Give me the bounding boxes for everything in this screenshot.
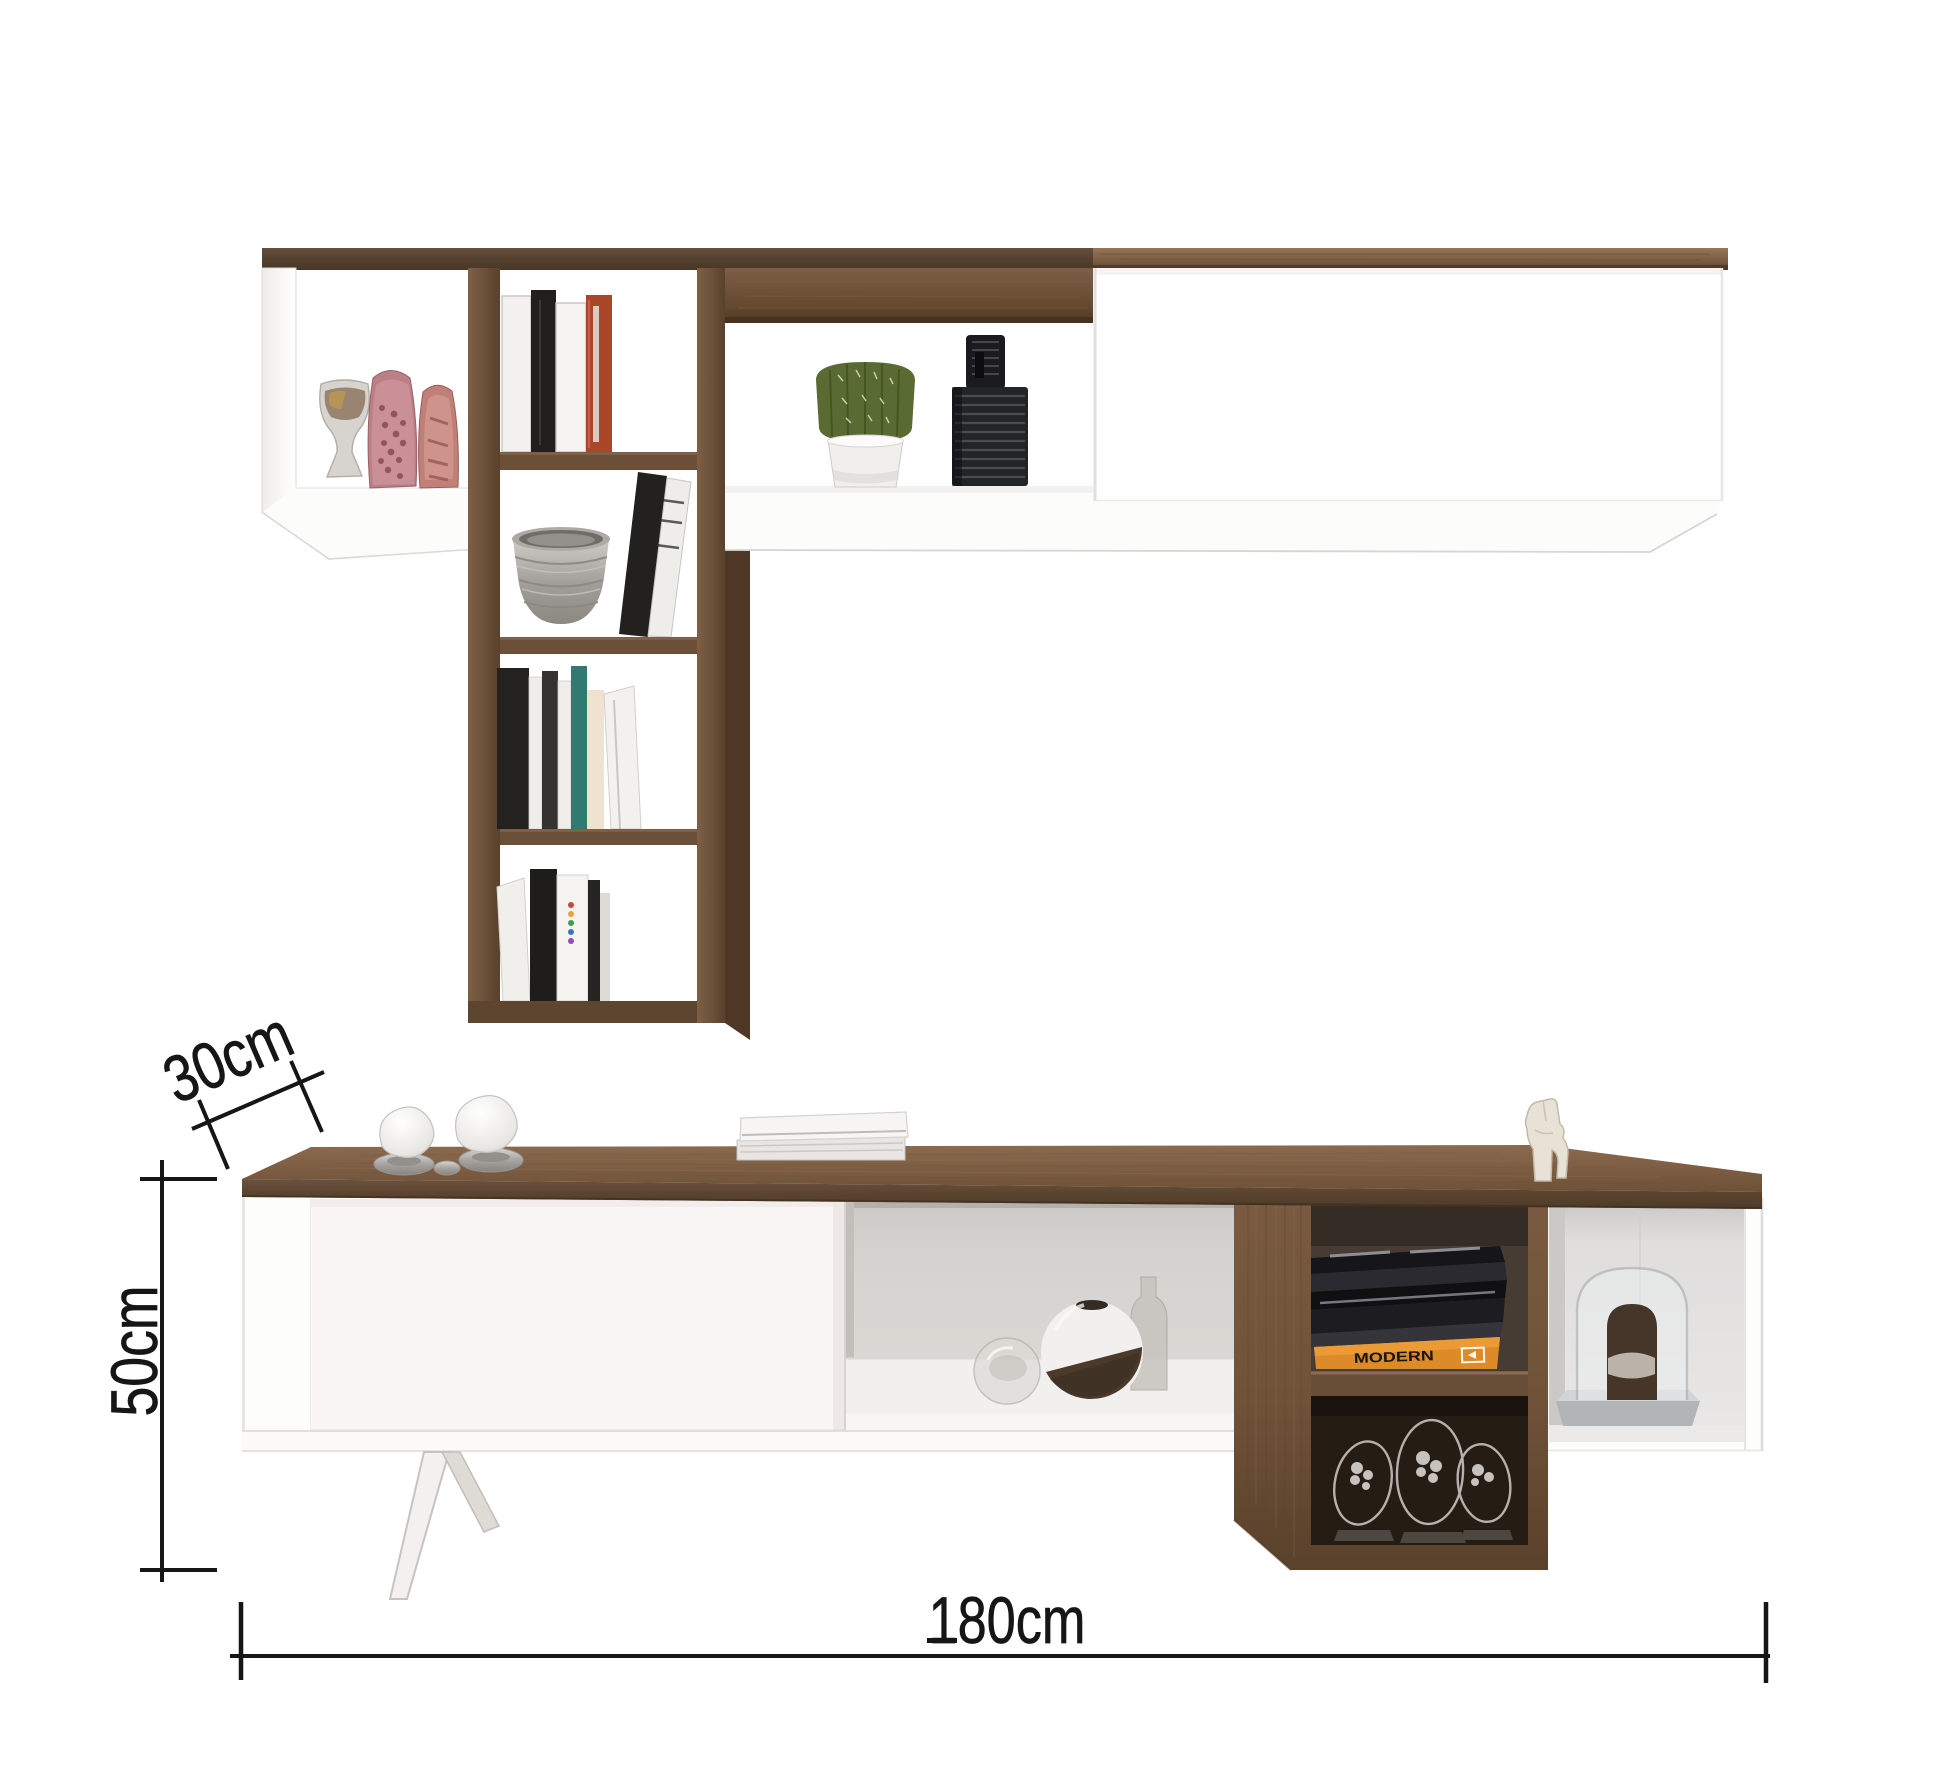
svg-text:180cm: 180cm (929, 1583, 1086, 1657)
svg-text:50cm: 50cm (97, 1286, 171, 1417)
svg-text:MODERN: MODERN (1354, 1347, 1435, 1366)
